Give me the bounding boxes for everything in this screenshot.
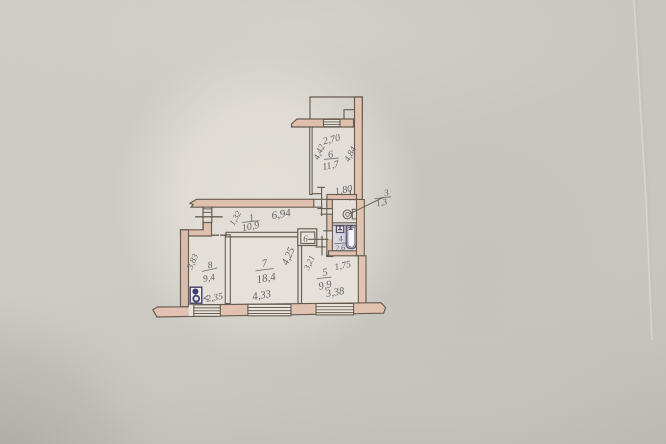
svg-text:9,4: 9,4 [202, 273, 216, 285]
svg-text:2,6: 2,6 [334, 243, 345, 253]
svg-text:6: 6 [303, 234, 308, 244]
